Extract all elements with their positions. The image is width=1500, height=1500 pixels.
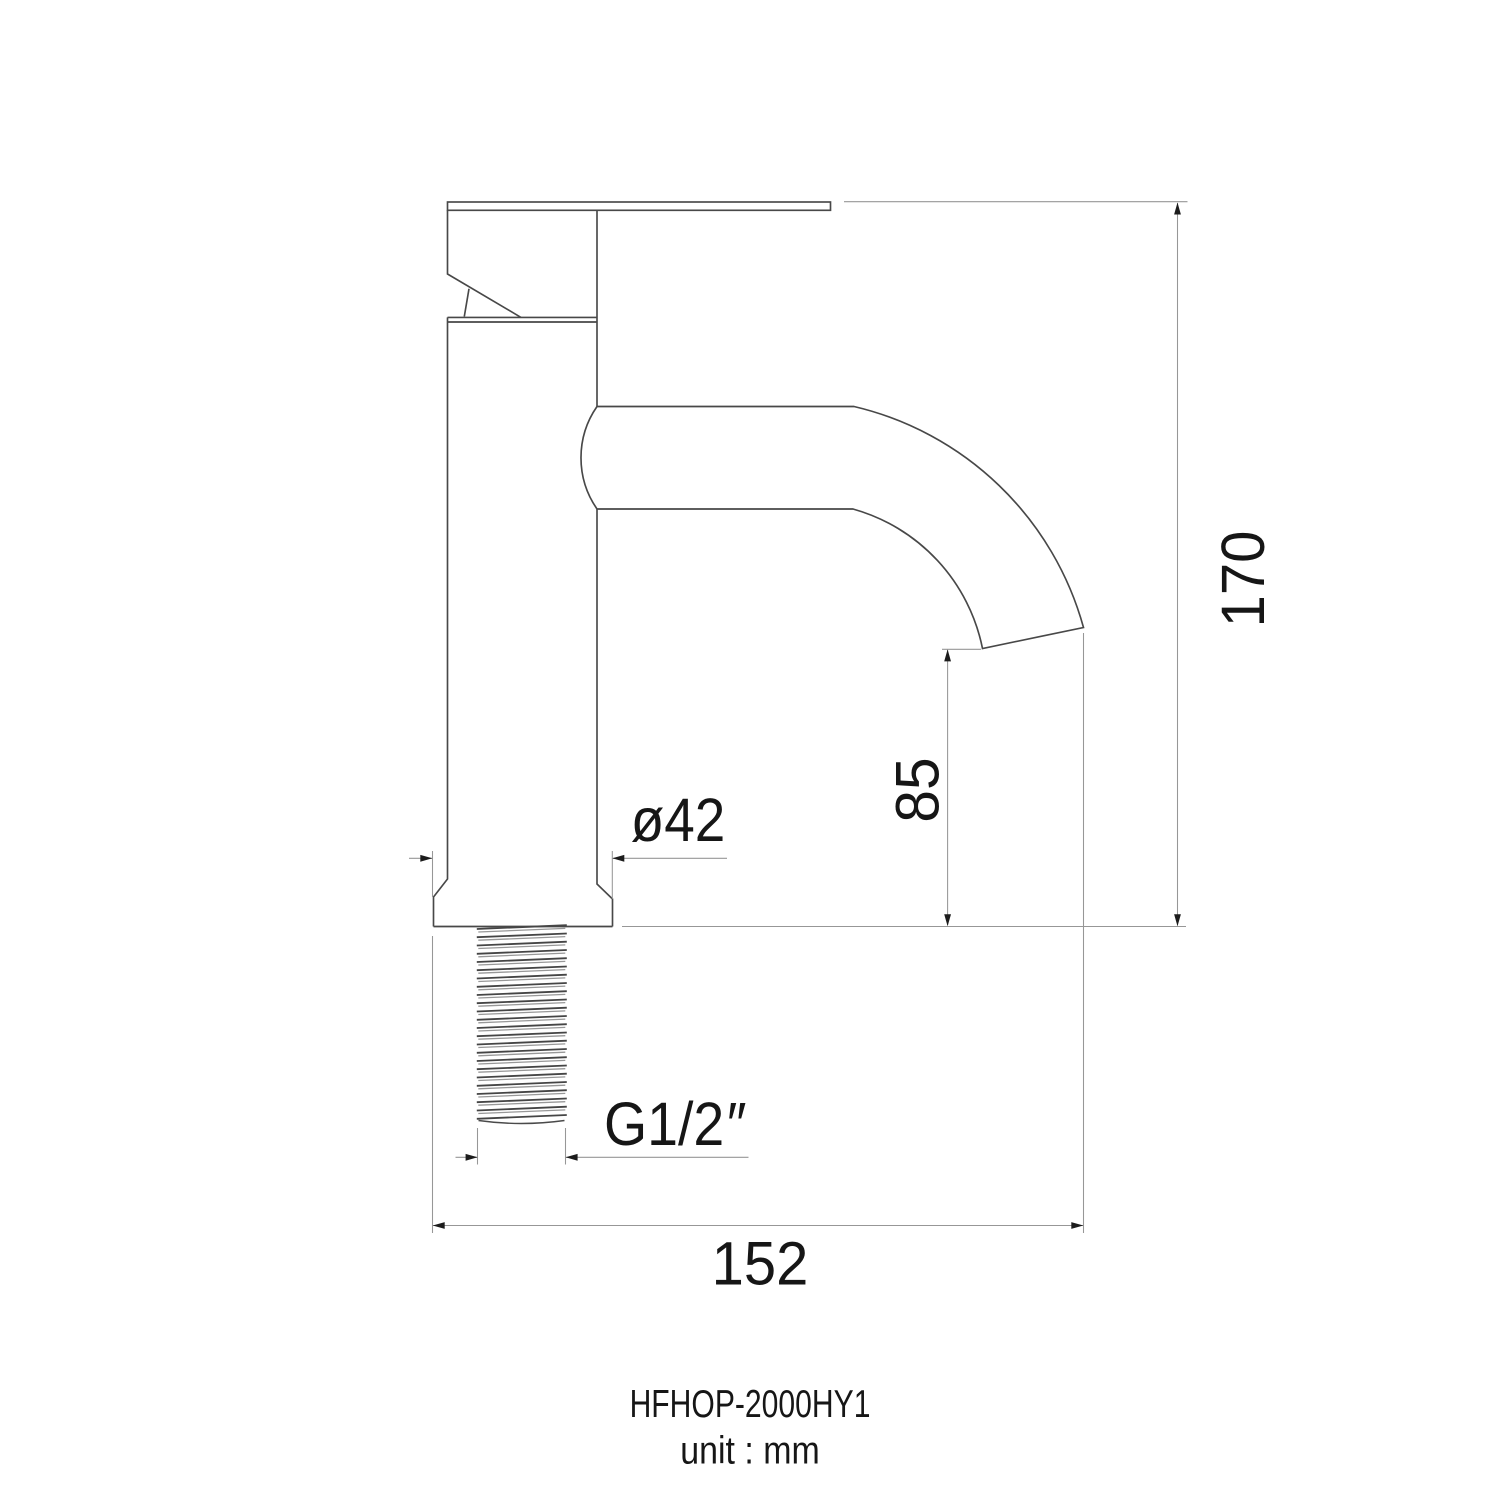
svg-text:ø42: ø42 bbox=[631, 786, 726, 854]
svg-text:G1/2″: G1/2″ bbox=[604, 1091, 746, 1159]
svg-text:unit : mm: unit : mm bbox=[680, 1428, 819, 1472]
svg-text:152: 152 bbox=[712, 1229, 809, 1298]
svg-text:85: 85 bbox=[883, 757, 951, 822]
svg-text:170: 170 bbox=[1209, 531, 1278, 628]
svg-text:HFHOP-2000HY1: HFHOP-2000HY1 bbox=[630, 1382, 871, 1426]
